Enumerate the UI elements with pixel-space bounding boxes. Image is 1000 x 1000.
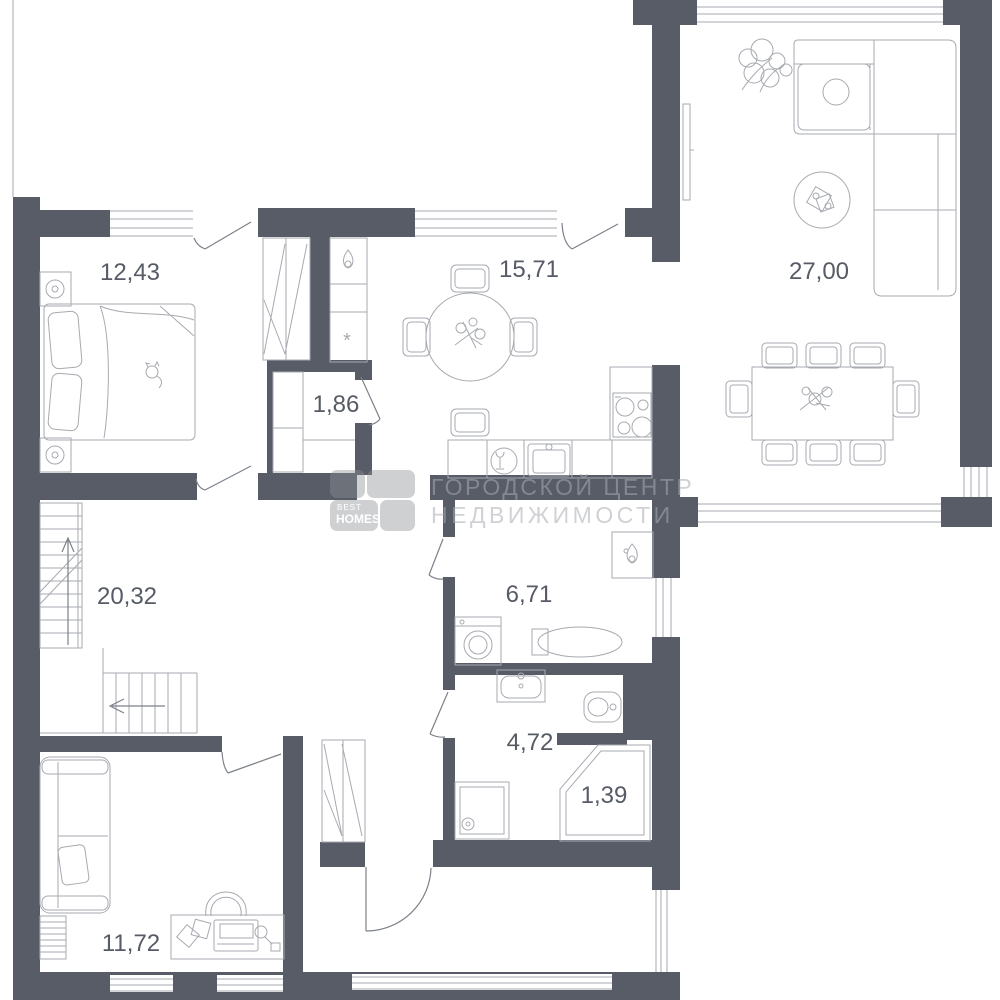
kitchen-counter-icon xyxy=(448,440,652,478)
round-dining-table-icon xyxy=(426,293,514,381)
stove-icon xyxy=(610,367,652,440)
room-area-bedroom: 12,43 xyxy=(100,259,160,286)
dining-table-icon xyxy=(752,367,893,440)
chair-icon xyxy=(850,343,885,368)
chair-icon xyxy=(726,381,752,417)
chair-icon xyxy=(510,318,537,356)
logo-square xyxy=(380,500,415,531)
tv-icon xyxy=(683,104,694,200)
chair-icon xyxy=(806,440,841,465)
logo-text-square: BEST HOMES xyxy=(330,500,378,531)
door-laundry xyxy=(429,539,443,579)
chair-icon xyxy=(403,318,430,356)
wine-glass-icon xyxy=(491,448,517,474)
window-kitchen-top xyxy=(415,211,557,236)
chair-icon xyxy=(806,343,841,368)
closet-shelves-icon xyxy=(273,372,355,472)
room-area-kitchen: 15,71 xyxy=(499,256,559,283)
washing-machine-icon xyxy=(455,617,501,665)
window-bedroom-top xyxy=(110,211,193,236)
window-living-right xyxy=(964,467,987,497)
chair-icon xyxy=(762,440,797,465)
room-area-living-room: 27,00 xyxy=(789,258,849,285)
key-icon xyxy=(255,926,280,951)
flowers-icon xyxy=(455,318,485,348)
watermark-line-1: ГОРОДСКОЙ ЦЕНТР xyxy=(431,474,694,501)
sofa-icon xyxy=(40,757,110,913)
door-office xyxy=(222,752,281,773)
window-porch-bottom xyxy=(352,974,612,990)
room-area-closet: 1,86 xyxy=(313,391,360,418)
door-entrance xyxy=(366,867,431,931)
cat-icon xyxy=(146,362,162,388)
doors xyxy=(194,222,618,931)
coffee-table-icon xyxy=(794,172,850,228)
flame-icon xyxy=(343,250,352,268)
room-area-shower-cabin: 1,39 xyxy=(581,782,628,809)
gas-boiler-icon xyxy=(612,532,653,578)
double-bed-icon xyxy=(44,304,195,440)
window-living-bottom xyxy=(698,504,941,522)
room-area-office: 11,72 xyxy=(102,930,160,957)
laptop-icon xyxy=(214,920,258,951)
chair-icon xyxy=(451,409,489,436)
chair-icon xyxy=(762,343,797,368)
logo-square xyxy=(367,470,415,498)
nightstand-icon xyxy=(40,438,71,472)
nightstand-icon xyxy=(40,272,71,306)
desk-icon xyxy=(171,915,284,959)
room-area-bathroom: 4,72 xyxy=(507,729,554,756)
door-kitchen-terrace xyxy=(562,223,618,249)
staircase-icon xyxy=(40,503,197,733)
window-laundry-right xyxy=(656,578,671,637)
chair-icon xyxy=(850,440,885,465)
radiator-icon xyxy=(40,916,66,959)
kitchen-sink-icon xyxy=(528,444,570,476)
window-office-bottom-right xyxy=(217,975,283,992)
logo-text-homes: HOMES xyxy=(330,512,378,525)
vent-asterisk-symbol: * xyxy=(343,330,351,352)
chair-icon xyxy=(451,265,489,292)
door-bedroom-terrace xyxy=(194,222,251,249)
flowers-icon xyxy=(800,387,832,410)
room-area-laundry: 6,71 xyxy=(506,581,553,608)
window-office-bottom-left xyxy=(110,975,173,992)
desk-chair-icon xyxy=(206,892,246,916)
toilet-icon xyxy=(584,692,621,722)
window-porch-right xyxy=(656,890,667,972)
shower-tray-icon xyxy=(455,782,509,839)
door-bathroom xyxy=(430,692,448,737)
water-heater-icon xyxy=(532,627,622,657)
logo-text-best: BEST xyxy=(330,500,378,512)
window-living-top xyxy=(697,7,943,22)
door-bedroom-hall xyxy=(196,466,251,490)
room-area-hall: 20,32 xyxy=(97,583,157,610)
watermark-line-2: НЕДВИЖИМОСТИ xyxy=(431,502,674,529)
door-closet xyxy=(361,377,380,425)
wardrobe-icon xyxy=(263,238,310,360)
logo-square xyxy=(330,470,365,498)
floor-plan: 12,43 15,71 27,00 1,86 20,32 6,71 4,72 1… xyxy=(0,0,1000,1000)
chair-icon xyxy=(893,381,919,417)
plant-icon xyxy=(739,39,792,92)
wardrobe-icon xyxy=(322,740,365,842)
